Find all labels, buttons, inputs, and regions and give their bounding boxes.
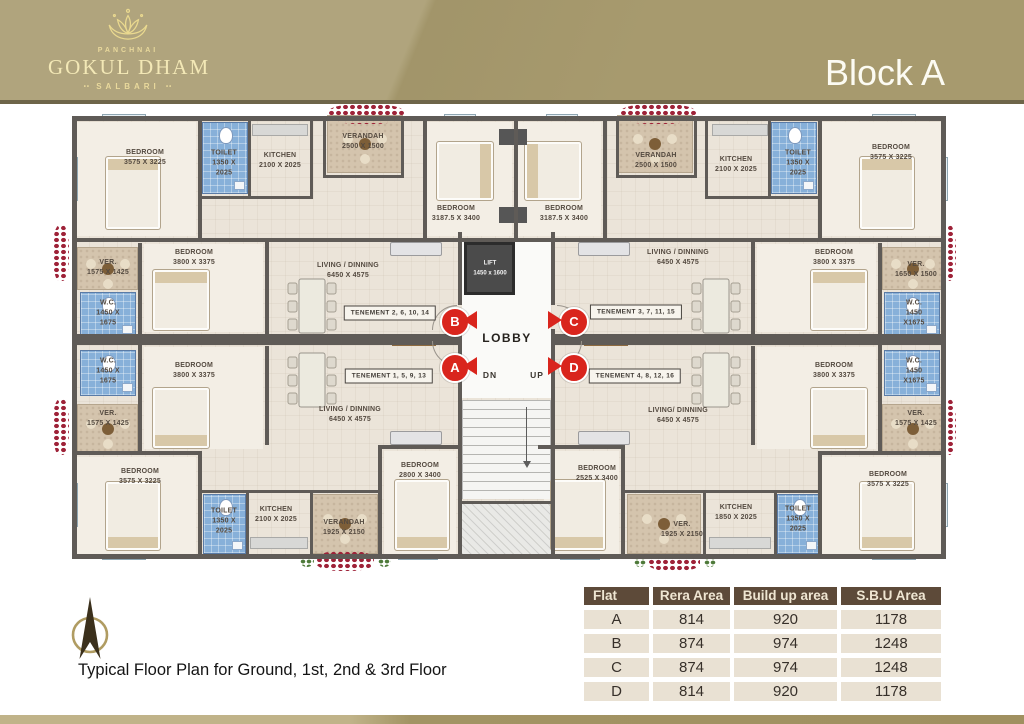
- room-label: VERANDAH 1925 X 2150: [316, 518, 372, 538]
- table-header-cell: Flat: [584, 587, 649, 605]
- room-label: VER. 1575 X 1425: [85, 409, 131, 429]
- wall: [705, 117, 708, 199]
- wall: [265, 240, 269, 334]
- brand-name: GOKUL DHAM: [48, 55, 208, 80]
- wall: [248, 117, 251, 199]
- flat-marker-arrow-d: [548, 357, 562, 375]
- wall: [597, 238, 945, 242]
- wall: [265, 346, 269, 445]
- table-cell: 1248: [841, 658, 941, 677]
- tenement-label: TENEMENT 2, 6, 10, 14: [344, 306, 436, 321]
- flat-marker-arrow-b: [463, 311, 477, 329]
- room-label: BEDROOM 3800 X 3375: [813, 361, 855, 381]
- brand-logo: PANCHNAI GOKUL DHAM •• SALBARI ••: [48, 6, 208, 91]
- room-label: BEDROOM 3800 X 3375: [173, 248, 215, 268]
- up-label: UP: [530, 370, 544, 380]
- room-label: KITCHEN 2100 X 2025: [710, 155, 762, 175]
- wall: [200, 196, 313, 199]
- table-cell: 920: [734, 610, 837, 629]
- room-label: LIVING / DINNING 6450 X 4575: [647, 248, 709, 268]
- room-label: BEDROOM 3800 X 3375: [173, 361, 215, 381]
- stairs-arrow-line: [526, 407, 527, 461]
- plan-caption: Typical Floor Plan for Ground, 1st, 2nd …: [78, 661, 447, 680]
- tenement-label: TENEMENT 3, 7, 11, 15: [590, 305, 682, 320]
- wall: [708, 196, 821, 199]
- wall: [751, 346, 755, 445]
- room-label: VERANDAH 2500 X 1500: [635, 151, 677, 171]
- wall: [551, 232, 555, 305]
- room-label: VER. 1925 X 2150: [656, 520, 708, 540]
- room-label: LIVING / DINNING 6450 X 4575: [319, 405, 381, 425]
- wall: [246, 492, 249, 558]
- wall: [555, 334, 945, 345]
- wall: [75, 334, 458, 345]
- wall: [774, 492, 777, 558]
- app-header: PANCHNAI GOKUL DHAM •• SALBARI •• Block …: [0, 0, 1024, 100]
- room-label: BEDROOM 3187.5 X 3400: [432, 204, 480, 224]
- table-cell: 1178: [841, 682, 941, 701]
- wall: [325, 175, 403, 178]
- lift-label: LIFT1450 x 1600: [473, 259, 506, 278]
- table-cell: 1178: [841, 610, 941, 629]
- room-label: BEDROOM 3575 X 3225: [119, 467, 161, 487]
- stairs-arrow-head: [523, 461, 531, 468]
- wall: [200, 490, 382, 493]
- brand-sub-text: SALBARI: [96, 82, 160, 91]
- dn-label: DN: [483, 370, 497, 380]
- wall: [198, 451, 202, 558]
- room-label: W.C. 1450 X 1675: [90, 298, 126, 327]
- room-label: LIVING/ DINNING 6450 X 4575: [648, 406, 708, 426]
- room-label: VER. 1650 X 1500: [893, 260, 939, 280]
- table-cell: B: [584, 634, 649, 653]
- brand-sub: •• SALBARI ••: [48, 82, 208, 91]
- wall: [323, 117, 326, 178]
- wall: [401, 117, 404, 178]
- flat-marker-arrow-c: [548, 311, 562, 329]
- table-cell: 974: [734, 658, 837, 677]
- room-label: VERANDAH 2500 X 1500: [342, 132, 384, 152]
- wall: [616, 117, 619, 178]
- floor-plan: LIFT1450 x 1600 LOBBY DN UP BEDROOM 3575…: [60, 113, 960, 565]
- tenement-label: TENEMENT 4, 8, 12, 16: [589, 369, 681, 384]
- table-header-cell: S.B.U Area: [841, 587, 941, 605]
- flat-marker-c: C: [559, 307, 589, 337]
- room-label: BEDROOM 3575 X 3225: [124, 148, 166, 168]
- area-table: FlatRera AreaBuild up areaS.B.U AreaA814…: [584, 587, 941, 701]
- wall: [621, 449, 625, 558]
- wall: [694, 117, 697, 178]
- room-label: BEDROOM 2800 X 3400: [399, 461, 441, 481]
- table-cell: 920: [734, 682, 837, 701]
- room-label: BEDROOM 2525 X 3400: [576, 464, 618, 484]
- lobby-label: LOBBY: [482, 331, 532, 345]
- table-cell: A: [584, 610, 649, 629]
- wall: [820, 451, 945, 455]
- brand-sub-decor-left: ••: [84, 84, 90, 90]
- table-cell: 1248: [841, 634, 941, 653]
- room-label: VER. 1575 X 1425: [85, 258, 131, 278]
- wall: [198, 117, 202, 242]
- lotus-icon: [105, 6, 151, 46]
- wall: [458, 232, 462, 305]
- wall: [818, 117, 822, 242]
- room-label: TOILET 1350 X 2025: [204, 506, 244, 535]
- wall: [751, 240, 755, 334]
- wall: [75, 238, 423, 242]
- table-cell: 814: [653, 682, 730, 701]
- table-cell: D: [584, 682, 649, 701]
- wall: [310, 117, 313, 199]
- flat-marker-d: D: [559, 353, 589, 383]
- room-label: TOILET 1350 X 2025: [778, 504, 818, 533]
- wall: [514, 117, 518, 242]
- wall: [818, 451, 822, 558]
- table-cell: 974: [734, 634, 837, 653]
- wall: [423, 117, 427, 242]
- wall: [878, 243, 882, 455]
- wall: [617, 175, 695, 178]
- room-label: TOILET 1350 X 2025: [204, 148, 244, 177]
- wall: [603, 117, 607, 242]
- table-cell: C: [584, 658, 649, 677]
- wall: [378, 449, 382, 558]
- wall: [310, 492, 313, 558]
- room-label: BEDROOM 3187.5 X 3400: [540, 204, 588, 224]
- page: PANCHNAI GOKUL DHAM •• SALBARI •• Block …: [0, 0, 1024, 724]
- brand-top-label: PANCHNAI: [48, 47, 208, 54]
- room-label: W.C. 1450 X 1675: [90, 356, 126, 385]
- flower-zone: [53, 225, 69, 281]
- table-cell: 814: [653, 610, 730, 629]
- room-label: KITCHEN 2100 X 2025: [250, 505, 302, 525]
- block-title: Block A: [825, 52, 945, 94]
- room-label: VER. 1575 X 1425: [893, 409, 939, 429]
- room-label: KITCHEN 1850 X 2025: [710, 503, 762, 523]
- wall: [458, 501, 555, 504]
- wall: [378, 445, 458, 449]
- room-label: BEDROOM 3575 X 3225: [870, 143, 912, 163]
- room-label: TOILET 1350 X 2025: [778, 148, 818, 177]
- room-label: BEDROOM 3575 X 3225: [867, 470, 909, 490]
- flower-zone: [53, 399, 69, 455]
- flat-marker-arrow-a: [463, 357, 477, 375]
- compass-icon: [70, 595, 110, 665]
- table-header-cell: Rera Area: [653, 587, 730, 605]
- header-divider: [0, 100, 1024, 104]
- room-label: LIVING / DINNING 6450 X 4575: [317, 261, 379, 281]
- room-label: KITCHEN 2100 X 2025: [254, 151, 306, 171]
- tenement-label: TENEMENT 1, 5, 9, 13: [345, 369, 433, 384]
- wall: [138, 243, 142, 455]
- room-label: BEDROOM 3800 X 3375: [813, 248, 855, 268]
- brand-sub-decor-right: ••: [166, 84, 172, 90]
- wall: [768, 117, 771, 199]
- bottom-bar: [0, 715, 1024, 724]
- table-cell: 874: [653, 658, 730, 677]
- room-label: W.C. 1450 X1675: [896, 298, 932, 327]
- table-cell: 874: [653, 634, 730, 653]
- room-label: W.C. 1450 X1675: [896, 356, 932, 385]
- wall: [623, 490, 821, 493]
- table-header-cell: Build up area: [734, 587, 837, 605]
